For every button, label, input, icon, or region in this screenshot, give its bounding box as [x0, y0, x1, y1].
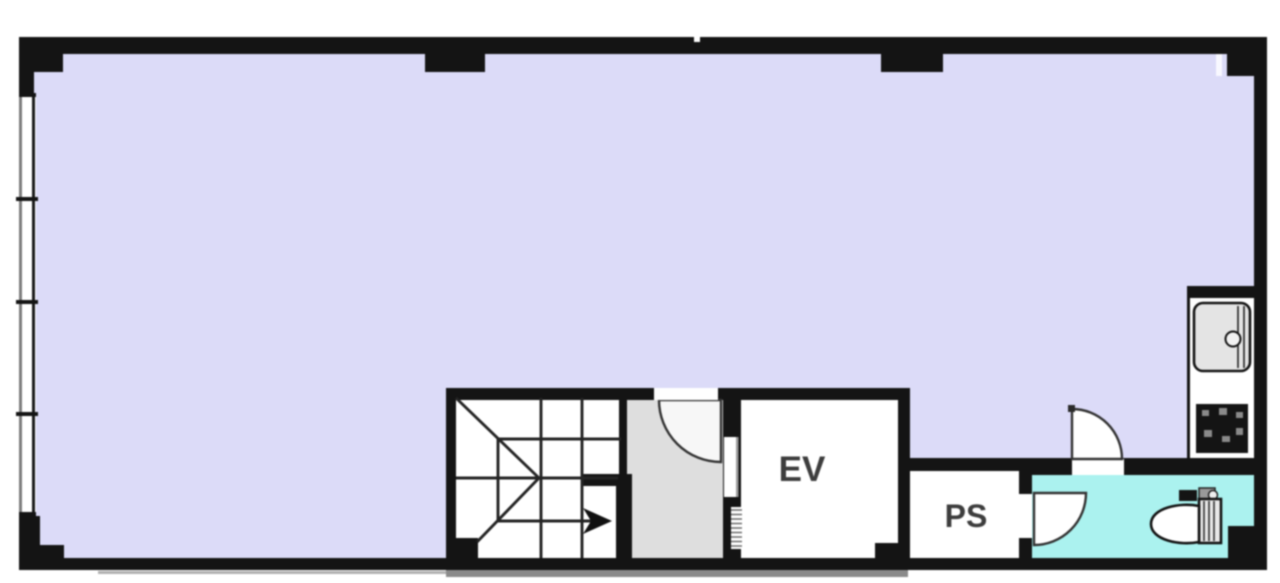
svg-text:EV: EV — [779, 450, 826, 489]
svg-text:PS: PS — [945, 498, 988, 534]
